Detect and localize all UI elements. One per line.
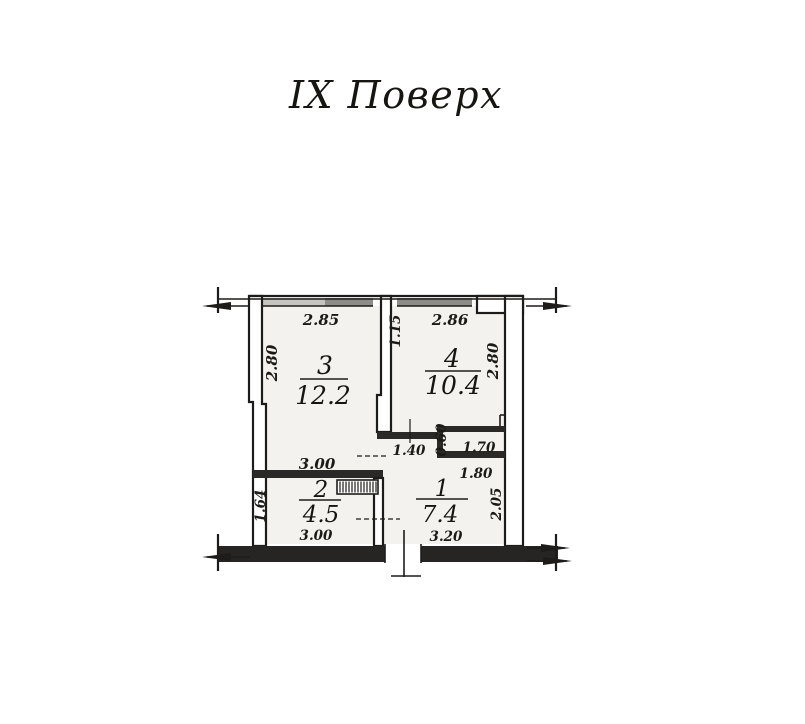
page-title: IX Поверх — [288, 73, 503, 117]
dim-top-left-width: 2.85 — [302, 311, 340, 329]
floor-plan-drawing: IX Поверх — [0, 0, 805, 724]
dim-room1-bottom-width: 3.20 — [430, 529, 463, 545]
room4-number: 4 — [443, 344, 460, 373]
room2-area: 4.5 — [302, 502, 340, 528]
dim-top-partition-offset: 1.15 — [388, 315, 404, 348]
bottom-wall — [219, 544, 558, 564]
dim-niche-depth: 0.60 — [434, 423, 450, 456]
dim-corridor-door-width: 1.40 — [393, 443, 426, 459]
dim-room2-bottom-width: 3.00 — [300, 528, 333, 544]
arrow-head-bottom-left — [202, 553, 231, 561]
floor-plan-page: IX Поверх — [0, 0, 805, 724]
dim-top-right-width: 2.86 — [431, 311, 469, 329]
dim-niche-width: 1.70 — [463, 440, 496, 456]
dim-room2-height: 1.64 — [253, 490, 269, 523]
dim-right-wall-height: 2.80 — [484, 342, 502, 380]
arrow-head-top-right — [543, 302, 572, 310]
room1-area: 7.4 — [422, 502, 459, 528]
room2-number: 2 — [313, 477, 329, 503]
dim-left-wall-height: 2.80 — [263, 344, 281, 382]
niche-top-wall — [443, 426, 505, 432]
room3-area: 12.2 — [295, 381, 351, 410]
dim-room1-height: 2.05 — [489, 488, 505, 522]
vent-shaft — [337, 480, 378, 494]
right-wall-body — [505, 296, 523, 546]
room4-area: 10.4 — [425, 371, 481, 400]
room1-number: 1 — [435, 476, 450, 502]
dim-room1-top-width: 1.80 — [460, 466, 493, 482]
arrow-head-top-left — [202, 302, 231, 310]
balcony-door-opening — [385, 544, 421, 564]
vent-shaft-hatch — [340, 482, 376, 493]
dim-room3-bottom-width: 3.00 — [299, 455, 336, 473]
room3-number: 3 — [317, 351, 333, 380]
